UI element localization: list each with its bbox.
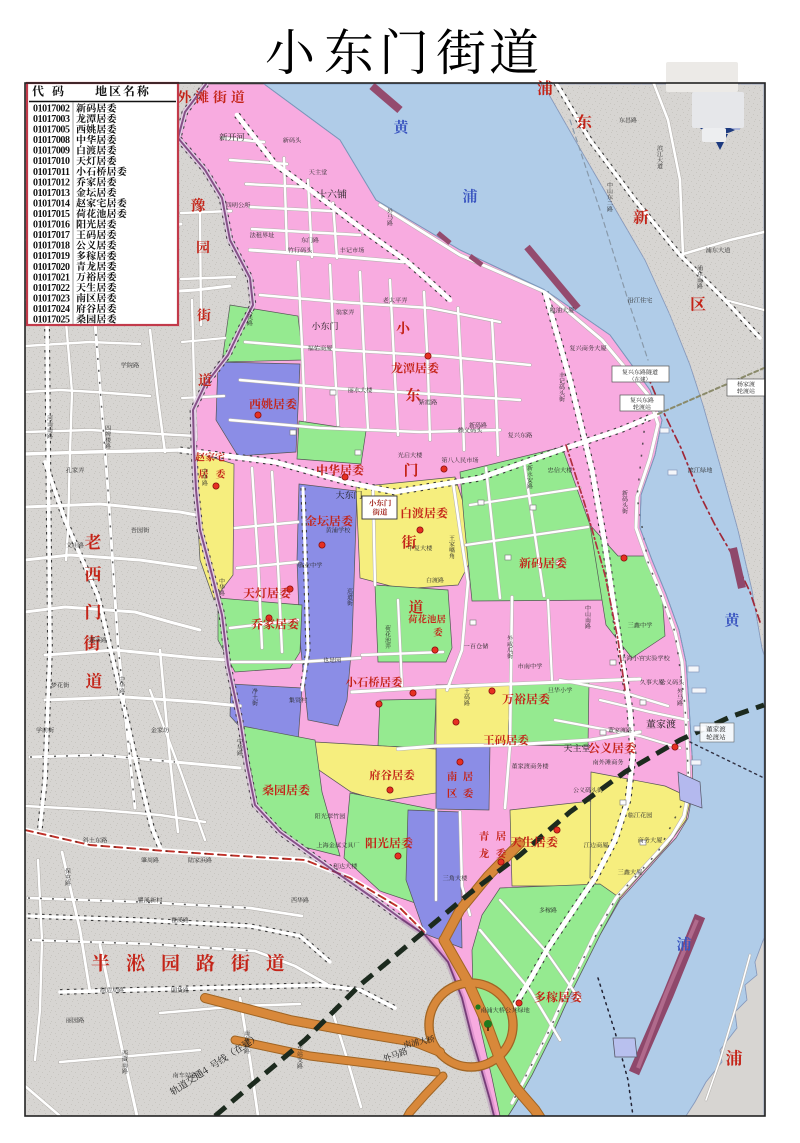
svg-text:01017009: 01017009 xyxy=(33,146,70,157)
svg-text:01017016: 01017016 xyxy=(33,220,70,231)
svg-text:01017019: 01017019 xyxy=(33,251,70,262)
svg-text:01017008: 01017008 xyxy=(33,135,70,146)
svg-text:01017021: 01017021 xyxy=(33,272,70,283)
svg-text:01017024: 01017024 xyxy=(33,304,70,315)
svg-text:01017015: 01017015 xyxy=(33,209,70,220)
svg-text:01017023: 01017023 xyxy=(33,293,70,304)
svg-text:01017025: 01017025 xyxy=(33,315,70,326)
svg-text:01017012: 01017012 xyxy=(33,177,70,188)
svg-text:01017003: 01017003 xyxy=(33,114,70,125)
svg-text:01017013: 01017013 xyxy=(33,188,70,199)
svg-text:01017014: 01017014 xyxy=(33,198,70,209)
svg-text:01017017: 01017017 xyxy=(33,230,70,241)
svg-text:01017020: 01017020 xyxy=(33,262,70,273)
svg-text:01017005: 01017005 xyxy=(33,125,70,136)
svg-text:01017022: 01017022 xyxy=(33,283,70,294)
svg-text:01017002: 01017002 xyxy=(33,104,70,115)
svg-text:01017018: 01017018 xyxy=(33,241,70,252)
svg-text:01017011: 01017011 xyxy=(33,167,70,178)
svg-text:01017010: 01017010 xyxy=(33,156,70,167)
